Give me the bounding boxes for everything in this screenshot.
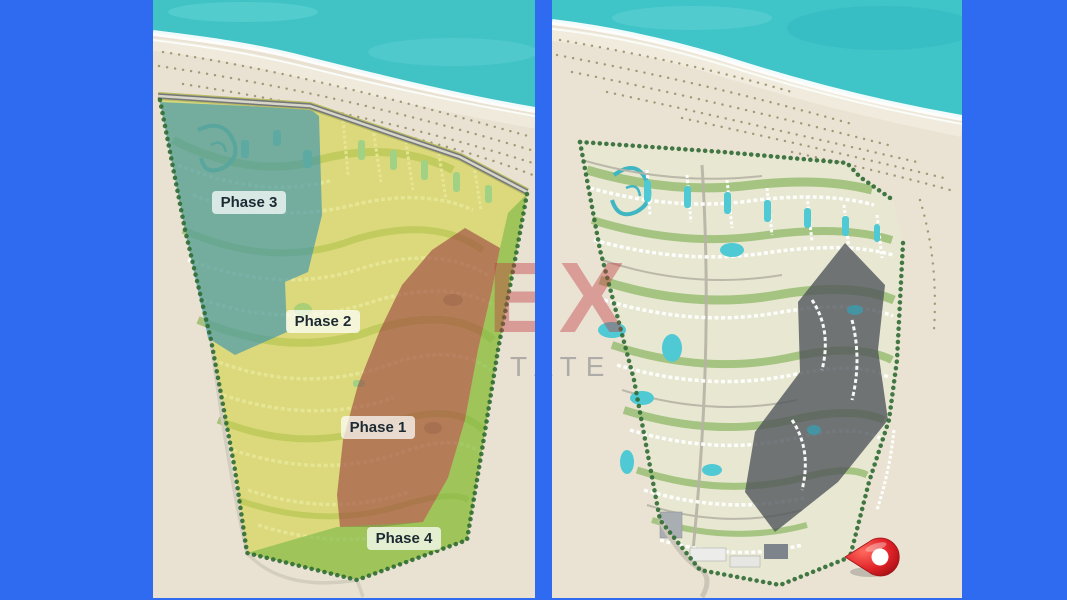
phase-1-label: Phase 1 [350,419,407,436]
location-map-svg [552,0,962,598]
parcel-pool [847,305,863,315]
phase-2-label-pill: Phase 2 [286,310,360,333]
phasing-masterplan-map: Phase 3 Phase 2 Phase 1 Phase 4 [153,0,535,598]
phase-1-label-pill: Phase 1 [341,416,415,439]
location-masterplan-map [552,0,962,598]
phasing-map-svg: Phase 3 Phase 2 Phase 1 Phase 4 [153,0,535,598]
masterplan-comparison-image: Phase 3 Phase 2 Phase 1 Phase 4 [0,0,1067,600]
parcel-pool [807,425,821,435]
map-divider [535,0,552,600]
sea-highlight [368,38,535,66]
sea-highlight [168,2,318,22]
phase-3-label: Phase 3 [221,194,278,211]
phase-4-label-pill: Phase 4 [367,527,441,550]
phase-3-label-pill: Phase 3 [212,191,286,214]
sea-highlight [612,6,772,30]
phase-4-label: Phase 4 [376,530,433,547]
phase-2-label: Phase 2 [295,313,352,330]
